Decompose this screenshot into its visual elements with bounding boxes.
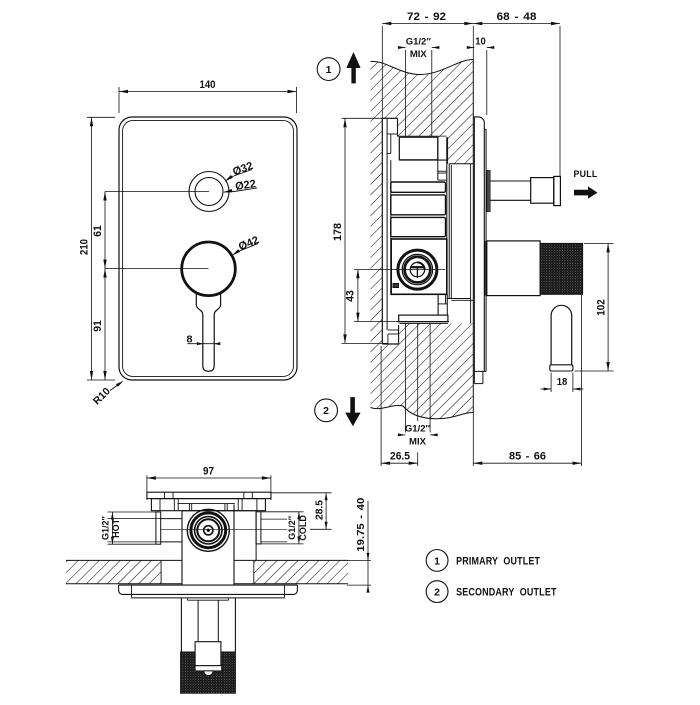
svg-text:178: 178 xyxy=(332,223,344,241)
svg-text:72 - 92: 72 - 92 xyxy=(407,11,446,23)
svg-text:18: 18 xyxy=(557,377,568,388)
svg-text:PRIMARY OUTLET: PRIMARY OUTLET xyxy=(456,555,540,567)
svg-text:10: 10 xyxy=(475,37,486,48)
svg-text:68 - 48: 68 - 48 xyxy=(497,11,537,23)
svg-text:1: 1 xyxy=(326,64,332,76)
svg-text:PULL: PULL xyxy=(574,169,598,180)
svg-text:G1/2″: G1/2″ xyxy=(287,515,297,540)
svg-text:210: 210 xyxy=(79,239,91,255)
svg-text:HOT: HOT xyxy=(111,518,121,538)
svg-text:2: 2 xyxy=(434,587,440,599)
svg-text:102: 102 xyxy=(596,299,608,316)
svg-text:G1/2″: G1/2″ xyxy=(405,424,431,435)
svg-text:MIX: MIX xyxy=(409,436,427,447)
svg-text:2: 2 xyxy=(323,405,329,417)
svg-text:G1/2″: G1/2″ xyxy=(406,36,432,47)
svg-text:43: 43 xyxy=(345,290,357,302)
svg-text:MIX: MIX xyxy=(410,49,428,60)
svg-text:91: 91 xyxy=(92,320,104,332)
svg-text:1: 1 xyxy=(434,555,440,567)
svg-text:61: 61 xyxy=(92,225,104,237)
svg-text:19.75 - 40: 19.75 - 40 xyxy=(355,498,367,552)
svg-text:85 - 66: 85 - 66 xyxy=(509,451,546,463)
svg-text:G1/2″: G1/2″ xyxy=(100,516,110,541)
svg-text:140: 140 xyxy=(200,79,216,91)
svg-text:26.5: 26.5 xyxy=(390,451,410,463)
svg-text:COLD: COLD xyxy=(298,515,308,541)
svg-text:SECONDARY OUTLET: SECONDARY OUTLET xyxy=(456,587,557,599)
svg-text:97: 97 xyxy=(203,466,214,478)
svg-text:28.5: 28.5 xyxy=(314,500,326,520)
